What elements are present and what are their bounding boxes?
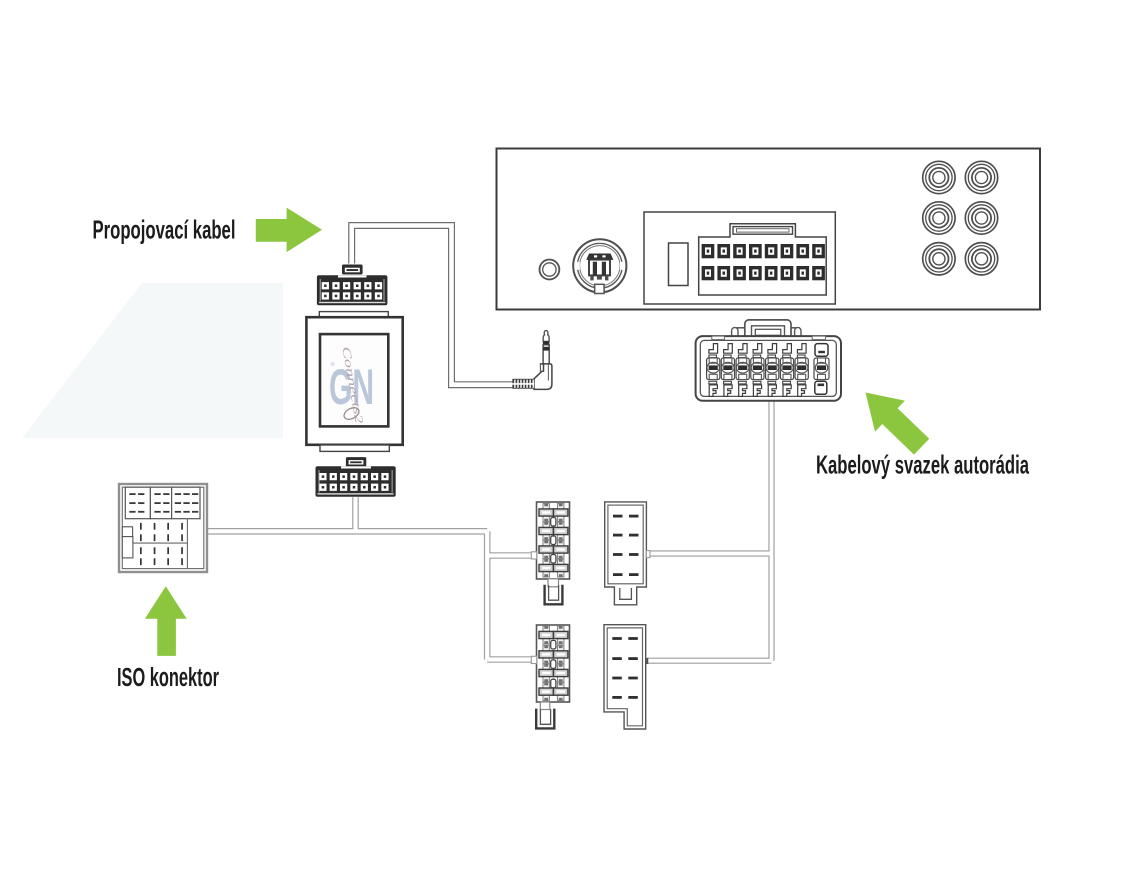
svg-text:Kabelový svazek autorádia: Kabelový svazek autorádia xyxy=(816,450,1029,480)
svg-text:ISO konektor: ISO konektor xyxy=(117,664,219,692)
svg-text:Propojovací kabel: Propojovací kabel xyxy=(93,215,236,245)
